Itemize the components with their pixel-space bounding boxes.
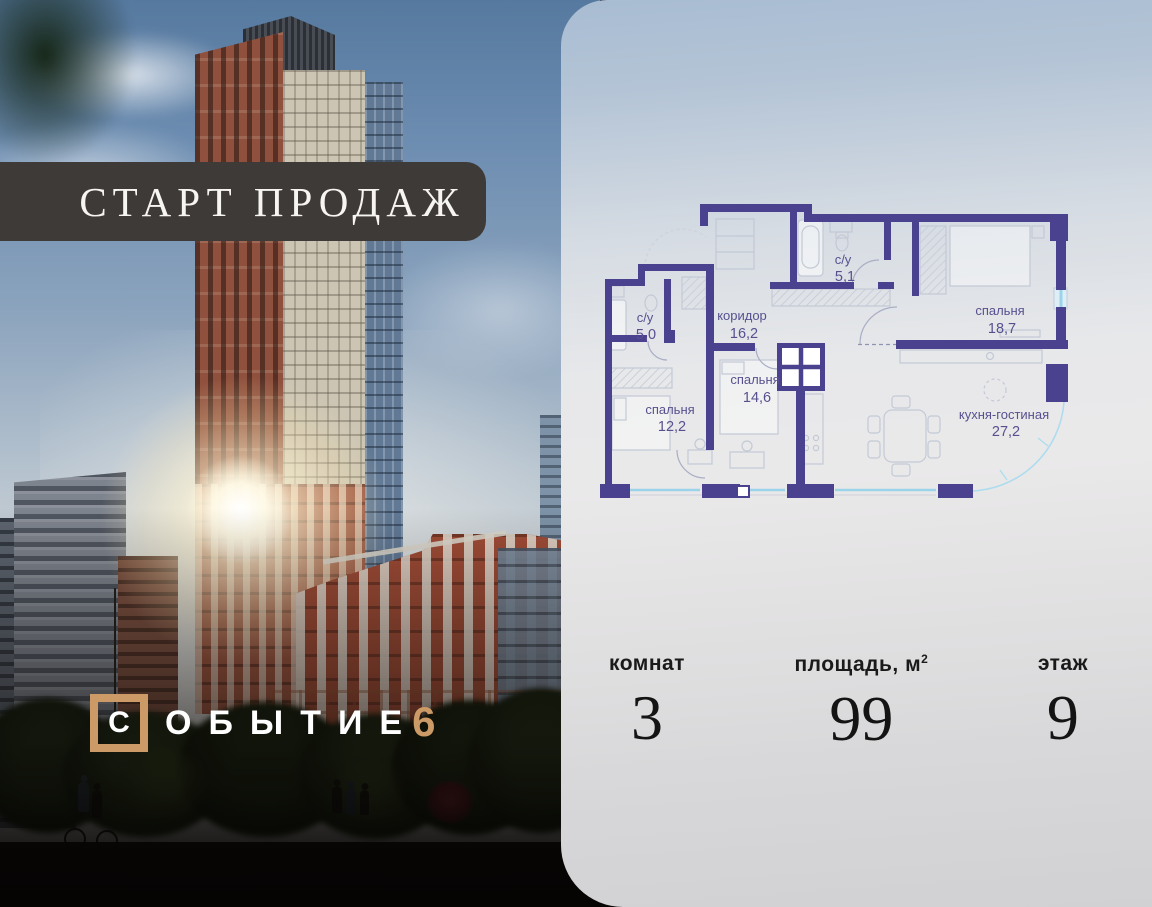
logo-letter: Б [208,706,232,740]
stat-area-label-sup: 2 [921,652,928,666]
stat-area-label: площадь, м2 [794,652,928,677]
room-label-bedroom2-area: 14,6 [743,390,771,406]
room-label-bedroom3-name: спальня [645,402,694,417]
logo-sobytie-6: С О Б Ы Т И Е 6 [90,692,435,754]
logo-letter: С [108,708,130,738]
logo-letter: И [338,706,362,740]
bottom-shade-overlay [0,0,600,907]
logo-letter: Т [300,706,321,740]
stat-rooms-value: 3 [609,684,685,751]
room-label-kitchen-area: 27,2 [992,424,1020,440]
building-photo [0,0,600,907]
stat-floor-label: этаж [1038,652,1088,676]
sales-start-banner: СТАРТ ПРОДАЖ [0,162,486,241]
stat-area: площадь, м2 99 [794,652,928,752]
banner-label: СТАРТ ПРОДАЖ [79,178,464,226]
room-label-bath1-name: с/у [835,252,852,267]
stat-area-label-base: площадь, м [794,653,921,676]
stat-area-value: 99 [794,685,928,752]
logo-wordmark: О Б Ы Т И Е [165,706,402,740]
stat-rooms-label: комнат [609,652,685,676]
room-label-corridor-area: 16,2 [730,326,758,342]
room-label-bedroom1-area: 18,7 [988,321,1016,337]
floor-plan: с/у 5,1 с/у 5,0 коридор 16,2 спальня 18,… [595,190,1120,525]
stat-floor-value: 9 [1038,684,1088,751]
room-label-corridor-name: коридор [717,308,767,323]
room-label-kitchen-name: кухня-гостиная [959,407,1049,422]
logo-square-frame: С [90,694,148,752]
apartment-card-panel: с/у 5,1 с/у 5,0 коридор 16,2 спальня 18,… [561,0,1152,907]
logo-letter: Е [379,706,402,740]
room-label-bath2-area: 5,0 [636,327,656,343]
room-label-bath2-name: с/у [637,310,654,325]
room-label-bedroom2-name: спальня [730,372,779,387]
floor-plan-svg: с/у 5,1 с/у 5,0 коридор 16,2 спальня 18,… [595,190,1120,525]
stat-floor: этаж 9 [1038,652,1088,752]
logo-number: 6 [412,701,435,743]
room-label-bath1-area: 5,1 [835,269,855,285]
apartment-stats: комнат 3 площадь, м2 99 этаж 9 [609,652,1088,752]
logo-letter: О [165,706,191,740]
stat-rooms: комнат 3 [609,652,685,752]
room-label-bedroom1-name: спальня [975,303,1024,318]
room-label-bedroom3-area: 12,2 [658,419,686,435]
logo-letter: Ы [250,706,283,740]
